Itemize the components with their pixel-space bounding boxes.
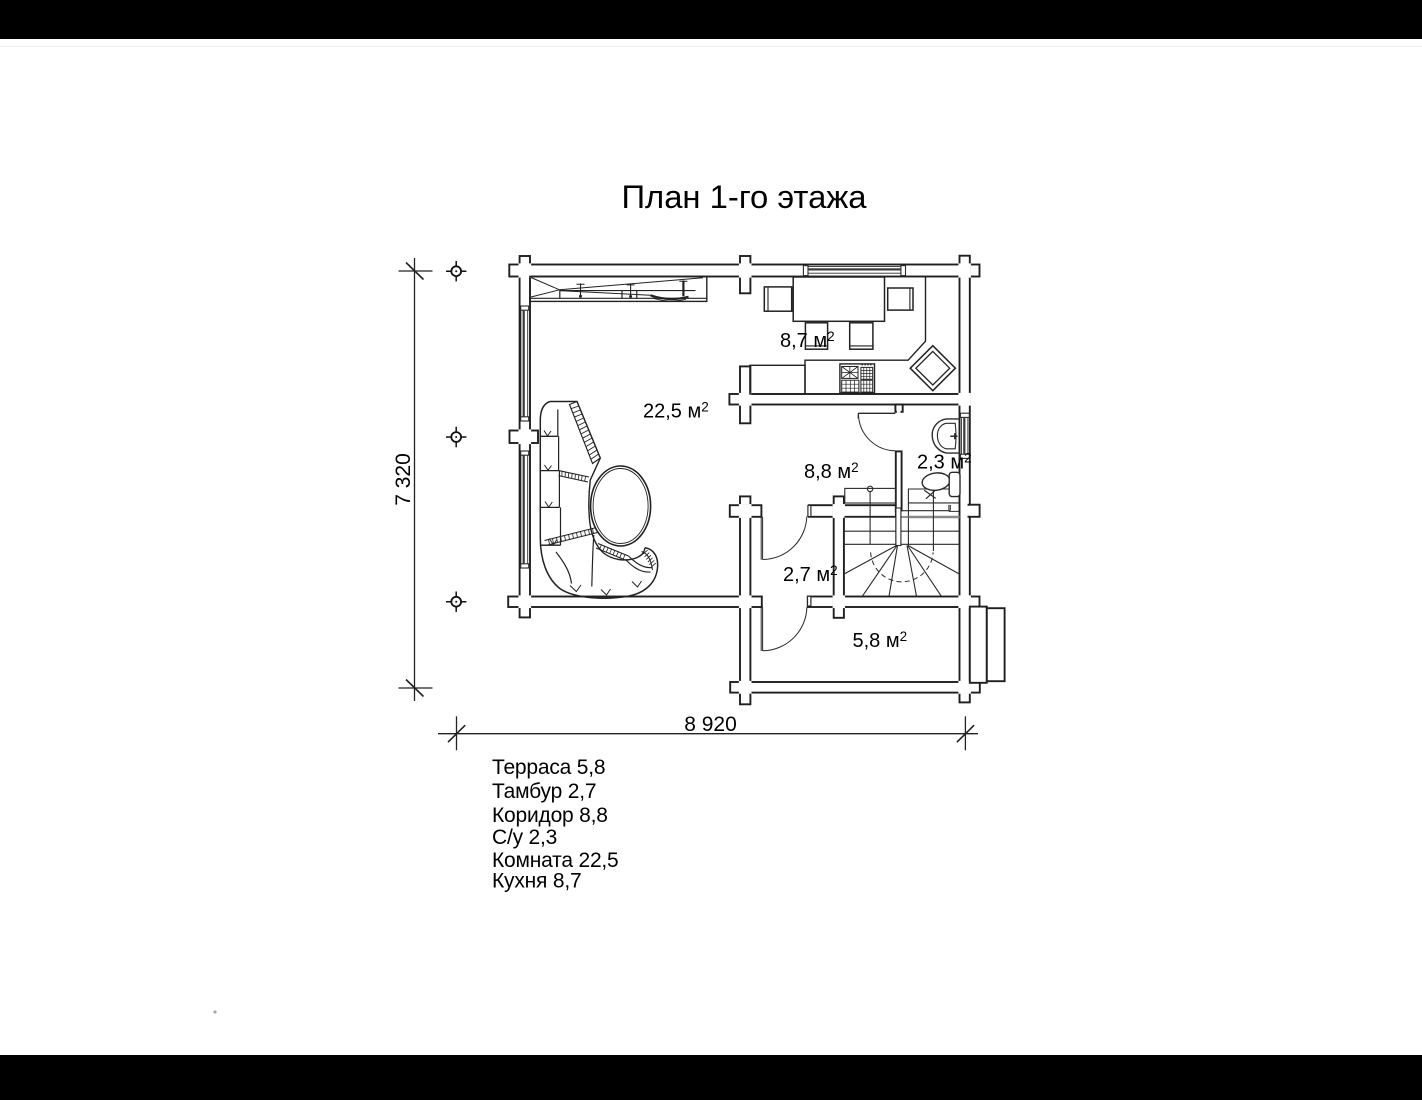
svg-text:2,7 м2: 2,7 м2 xyxy=(783,563,838,586)
svg-text:8,7 м2: 8,7 м2 xyxy=(780,329,835,352)
svg-text:Терраса 5,8: Терраса 5,8 xyxy=(492,756,605,779)
svg-text:С/у 2,3: С/у 2,3 xyxy=(492,826,557,849)
svg-text:8,8 м2: 8,8 м2 xyxy=(804,460,859,483)
svg-text:План 1-го этажа: План 1-го этажа xyxy=(621,178,867,215)
svg-text:Тамбур 2,7: Тамбур 2,7 xyxy=(492,780,596,803)
svg-text:5,8 м2: 5,8 м2 xyxy=(853,629,908,652)
svg-text:22,5 м2: 22,5 м2 xyxy=(643,400,709,423)
svg-text:Коридор 8,8: Коридор 8,8 xyxy=(492,804,608,827)
svg-text:2,3 м2: 2,3 м2 xyxy=(917,451,972,474)
svg-text:7 320: 7 320 xyxy=(392,453,415,506)
svg-text:8 920: 8 920 xyxy=(684,713,737,736)
svg-text:Кухня 8,7: Кухня 8,7 xyxy=(492,870,581,893)
